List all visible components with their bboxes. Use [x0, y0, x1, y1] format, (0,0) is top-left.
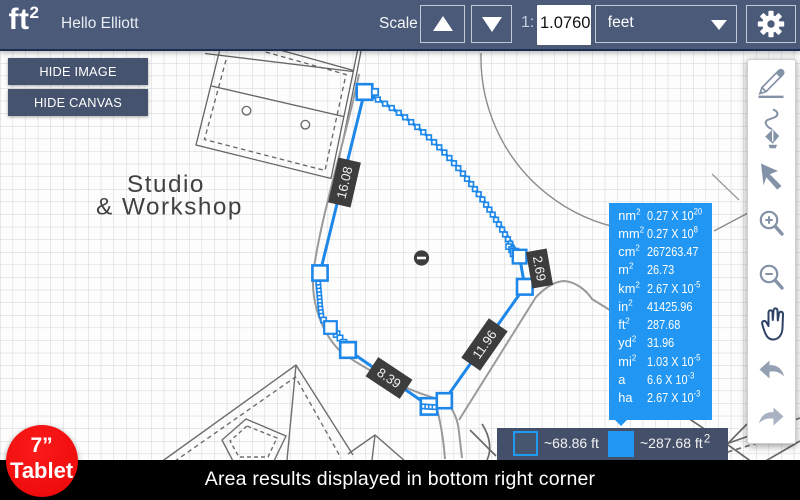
svg-text:& Workshop: & Workshop — [96, 194, 243, 221]
